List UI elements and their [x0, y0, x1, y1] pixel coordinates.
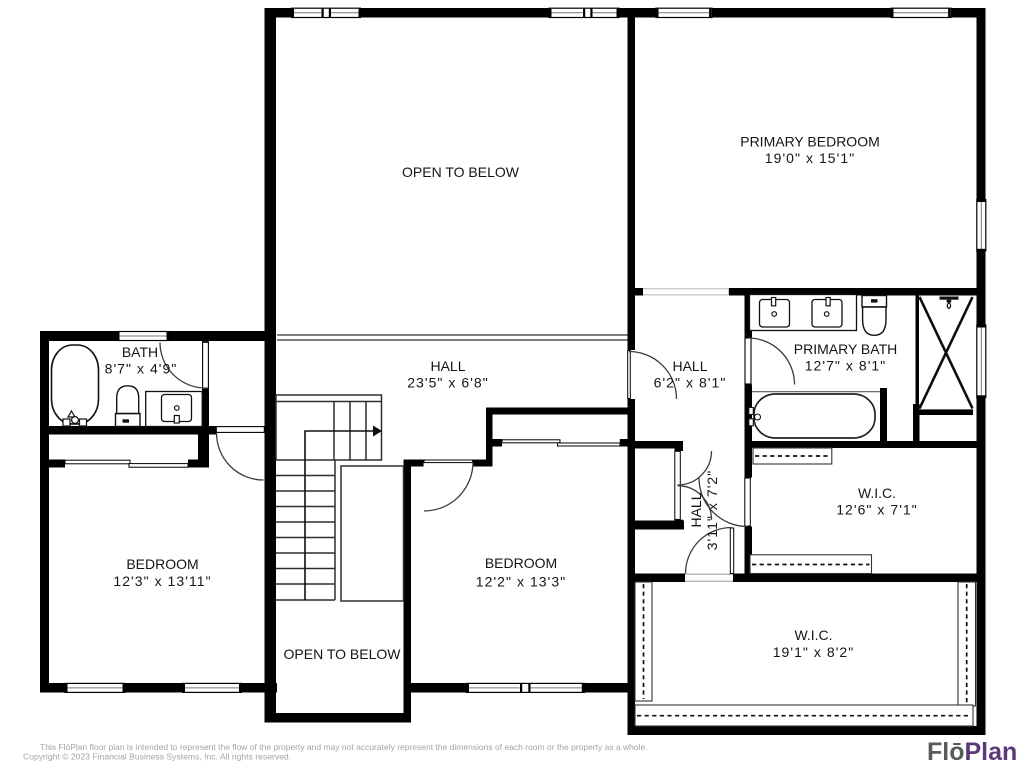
svg-text:This FlōPlan floor plan is int: This FlōPlan floor plan is intended to r… [40, 742, 648, 752]
svg-text:PRIMARY BATH: PRIMARY BATH [794, 341, 897, 357]
svg-text:PRIMARY BEDROOM: PRIMARY BEDROOM [740, 134, 880, 150]
svg-text:19'1" x 8'2": 19'1" x 8'2" [773, 644, 855, 660]
svg-text:BATH: BATH [122, 344, 158, 360]
svg-text:Copyright © 2023 Financial Bus: Copyright © 2023 Financial Business Syst… [23, 752, 291, 762]
svg-text:BEDROOM: BEDROOM [485, 555, 557, 571]
svg-text:19'0" x 15'1": 19'0" x 15'1" [765, 150, 855, 166]
svg-text:BEDROOM: BEDROOM [126, 556, 198, 572]
svg-text:12'6" x 7'1": 12'6" x 7'1" [836, 502, 918, 518]
svg-text:W.I.C.: W.I.C. [858, 485, 896, 501]
svg-text:OPEN TO BELOW: OPEN TO BELOW [402, 164, 520, 180]
svg-text:OPEN TO BELOW: OPEN TO BELOW [284, 646, 402, 662]
svg-text:6'2" x 8'1": 6'2" x 8'1" [654, 375, 727, 391]
svg-text:W.I.C.: W.I.C. [794, 627, 832, 643]
svg-text:8'7" x 4'9": 8'7" x 4'9" [105, 361, 178, 377]
svg-text:12'7" x 8'1": 12'7" x 8'1" [805, 358, 887, 374]
svg-text:12'3" x 13'11": 12'3" x 13'11" [113, 573, 211, 589]
svg-text:HALL: HALL [688, 492, 704, 527]
svg-text:23'5" x 6'8": 23'5" x 6'8" [407, 375, 489, 391]
svg-text:FlōPlan: FlōPlan [927, 738, 1017, 766]
svg-text:12'2" x 13'3": 12'2" x 13'3" [476, 574, 566, 590]
svg-text:HALL: HALL [430, 358, 465, 374]
svg-text:3'11" x 7'2": 3'11" x 7'2" [704, 470, 720, 551]
svg-text:HALL: HALL [672, 358, 707, 374]
